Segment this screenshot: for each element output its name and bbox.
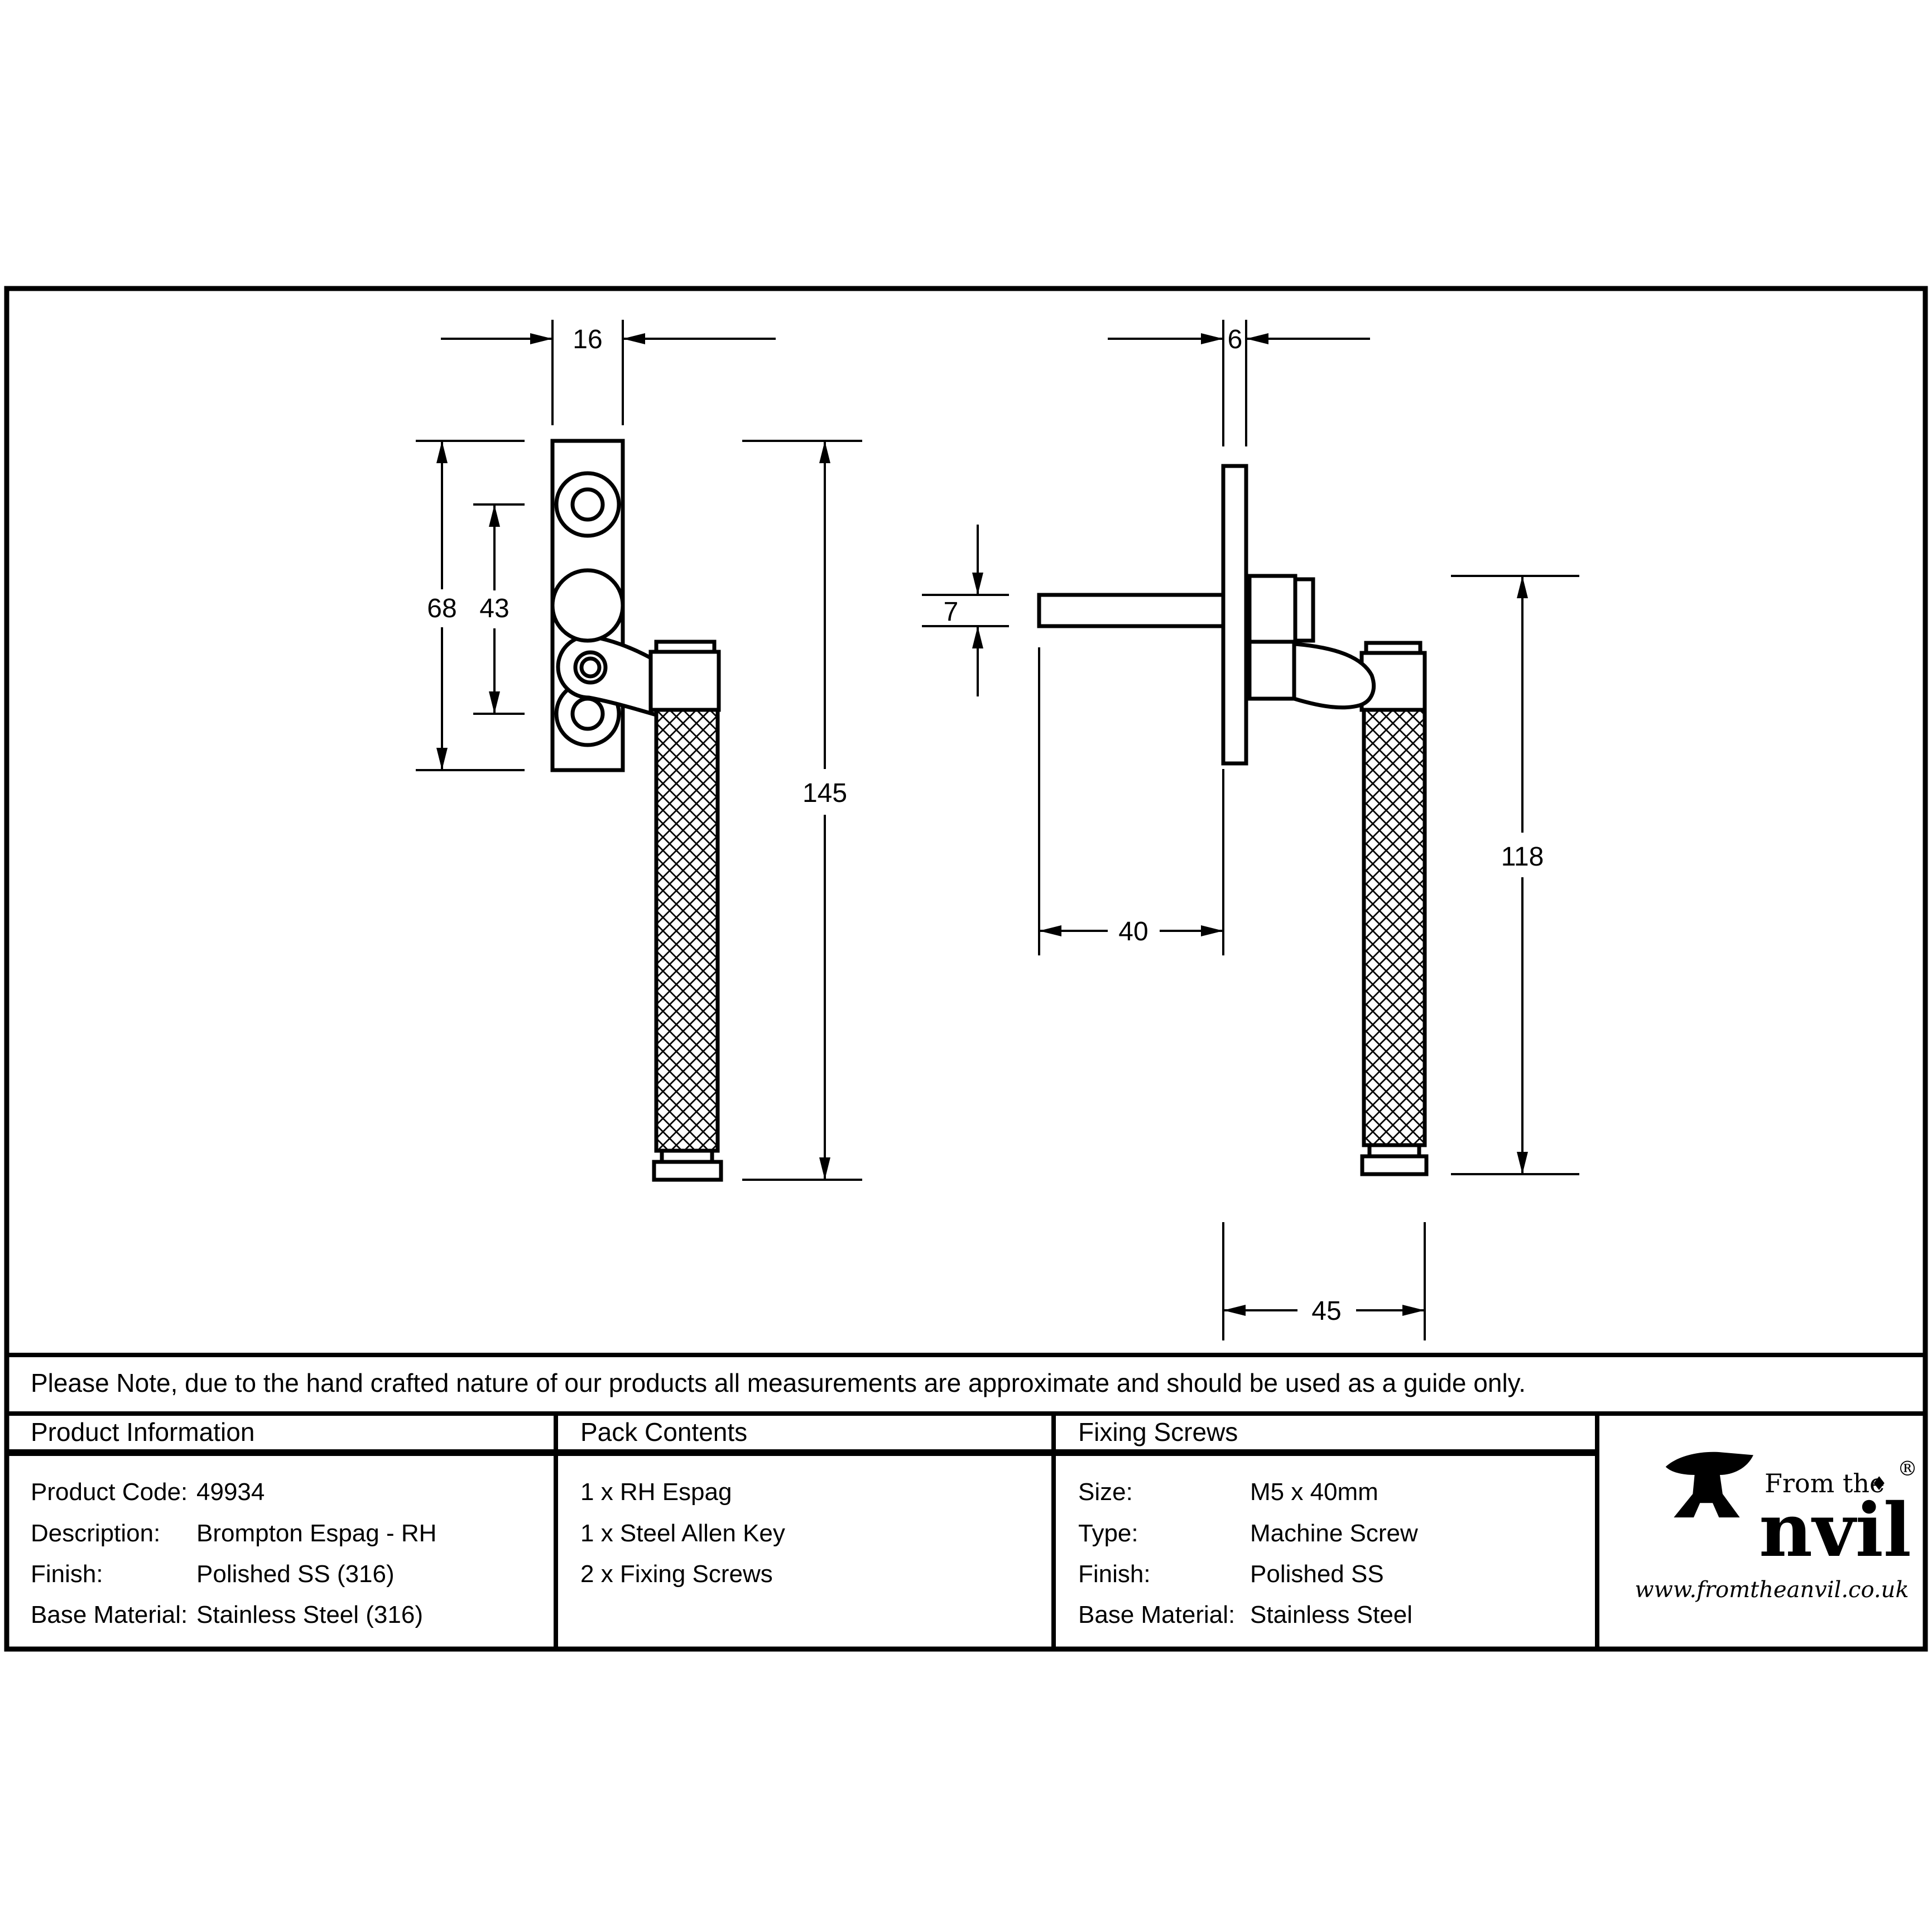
pack-item: 1 x RH Espag [580,1478,732,1506]
row-label: Product Code: [31,1478,188,1506]
row-value: Stainless Steel [1250,1601,1412,1628]
grip-end-cap [654,1162,721,1180]
dim-label-plate-height: 68 [427,594,456,623]
row-value: Brompton Espag - RH [196,1520,436,1547]
side-grip-top-cap [1366,643,1420,653]
datasheet: 16 68 43 145 [0,0,1932,1932]
dim-label-projection: 45 [1311,1296,1341,1326]
column-header-product-information: Product Information [31,1417,254,1446]
dim-label-spindle-height: 7 [944,597,959,627]
grip-collar [651,652,719,710]
row-value: 49934 [196,1478,265,1506]
row-label: Base Material: [1078,1601,1235,1628]
row-label: Finish: [31,1560,103,1588]
dim-label-total-length: 145 [802,778,847,808]
column-header-pack-contents: Pack Contents [580,1417,747,1446]
row-label: Description: [31,1520,160,1547]
dim-label-handle-length: 118 [1501,842,1544,872]
dim-label-spindle-length: 40 [1118,917,1148,946]
logo-wordmark: nvil [1759,1487,1911,1574]
row-label: Base Material: [31,1601,188,1628]
dim-label-plate-thickness: 6 [1228,325,1243,354]
mechanism-lower-block [1249,642,1294,699]
pack-item: 2 x Fixing Screws [580,1560,773,1588]
dim-label-hole-spacing: 43 [479,594,509,623]
row-label: Size: [1078,1478,1133,1506]
top-screw-hole-inner [573,489,603,520]
row-value: Polished SS (316) [196,1560,395,1588]
row-label: Type: [1078,1520,1138,1547]
row-label: Finish: [1078,1560,1151,1588]
registered-trademark-symbol: ® [1897,1458,1917,1481]
mechanism-step-block [1295,579,1313,641]
mechanism-upper-block [1249,576,1295,642]
spindle-bar [1039,595,1223,626]
pack-item: 1 x Steel Allen Key [580,1520,785,1547]
side-knurled-grip [1364,710,1425,1145]
side-grip-end-cap [1362,1156,1426,1174]
row-value: Machine Screw [1250,1520,1418,1547]
knurled-grip [656,710,718,1151]
locking-knob [552,570,623,641]
measurement-disclaimer: Please Note, due to the hand crafted nat… [31,1368,1526,1397]
row-value: M5 x 40mm [1250,1478,1378,1506]
row-value: Stainless Steel (316) [196,1601,423,1628]
column-header-fixing-screws: Fixing Screws [1078,1417,1238,1446]
bottom-screw-hole-inner [573,699,603,729]
logo-url: www.fromtheanvil.co.uk [1635,1577,1909,1603]
rose-plate-side [1223,466,1246,763]
dim-label-plate-width: 16 [573,325,602,354]
pivot-screw-inner [581,659,599,676]
row-value: Polished SS [1250,1560,1384,1588]
